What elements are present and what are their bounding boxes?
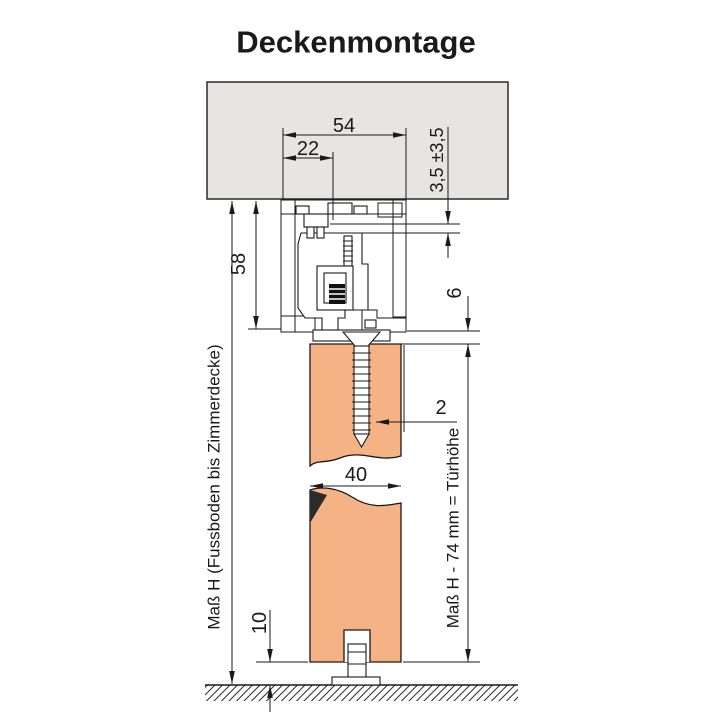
track-bottom-notch [365, 320, 376, 328]
top-wall-notch [354, 206, 367, 214]
page-title: Deckenmontage [236, 25, 475, 60]
track-clamp-block [378, 203, 402, 217]
ceiling-block [207, 82, 508, 199]
technical-drawing-ceiling-mount: 54 22 3,5 ±3,5 58 6 2 40 [0, 0, 713, 713]
dim-mass-h-right: Maß H - 74 mm = Türhöhe [403, 344, 480, 662]
track-right-wall [393, 200, 406, 317]
floor-hatch [205, 685, 518, 701]
dim-door-thickness-40: 40 [310, 464, 401, 489]
dim-label-10: 10 [249, 612, 271, 634]
top-wall-notch [296, 206, 309, 214]
dim-label-2: 2 [435, 397, 446, 419]
label-mass-h-right: Maß H - 74 mm = Türhöhe [444, 428, 463, 628]
floor-guide-base [332, 677, 380, 685]
dim-label-54: 54 [333, 115, 355, 137]
screw-shaft [354, 346, 369, 434]
dim-track-height-58: 58 [228, 201, 281, 329]
dim-label-58: 58 [228, 253, 250, 275]
roller-trolley [298, 214, 368, 332]
dim-label-22: 22 [297, 138, 319, 160]
floor [205, 685, 518, 701]
hanger-nut [304, 214, 328, 227]
hanger-nut-prong [307, 227, 314, 238]
top-wall-notch [328, 203, 352, 214]
label-mass-h-left: Maß H (Fussboden bis Zimmerdecke) [205, 344, 224, 629]
dim-label-6: 6 [444, 287, 466, 298]
dim-label-40: 40 [345, 464, 367, 486]
hanger-nut-prong [317, 227, 324, 238]
track-left-wall [281, 200, 295, 332]
dim-label-adjust: 3,5 ±3,5 [427, 128, 447, 193]
floor-guide-post [348, 644, 366, 678]
dim-gap-6: 6 [401, 287, 480, 344]
